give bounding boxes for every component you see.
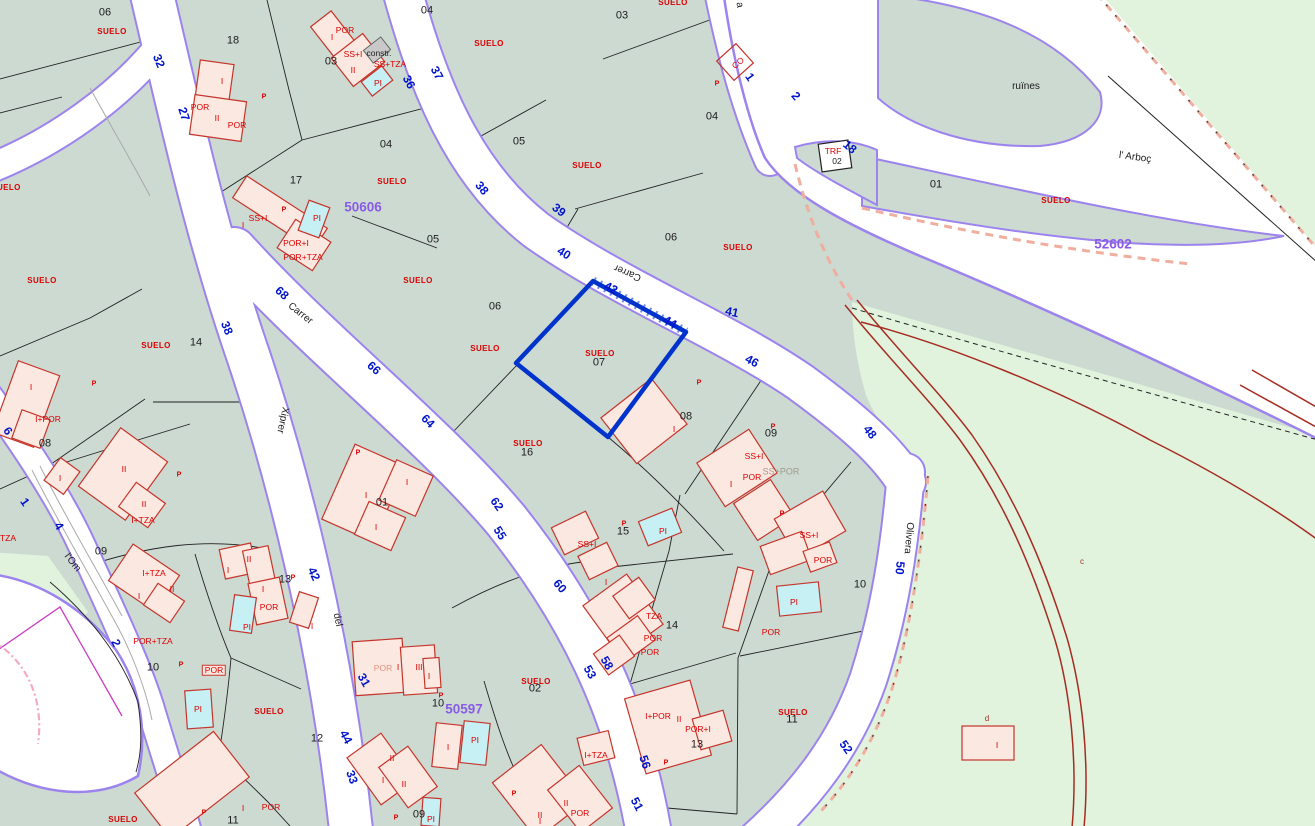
map-canvas[interactable] [0,0,1315,826]
trf-transformer [818,140,852,172]
cadastral-map[interactable]: 0618030404170505030406010607140809080116… [0,0,1315,826]
